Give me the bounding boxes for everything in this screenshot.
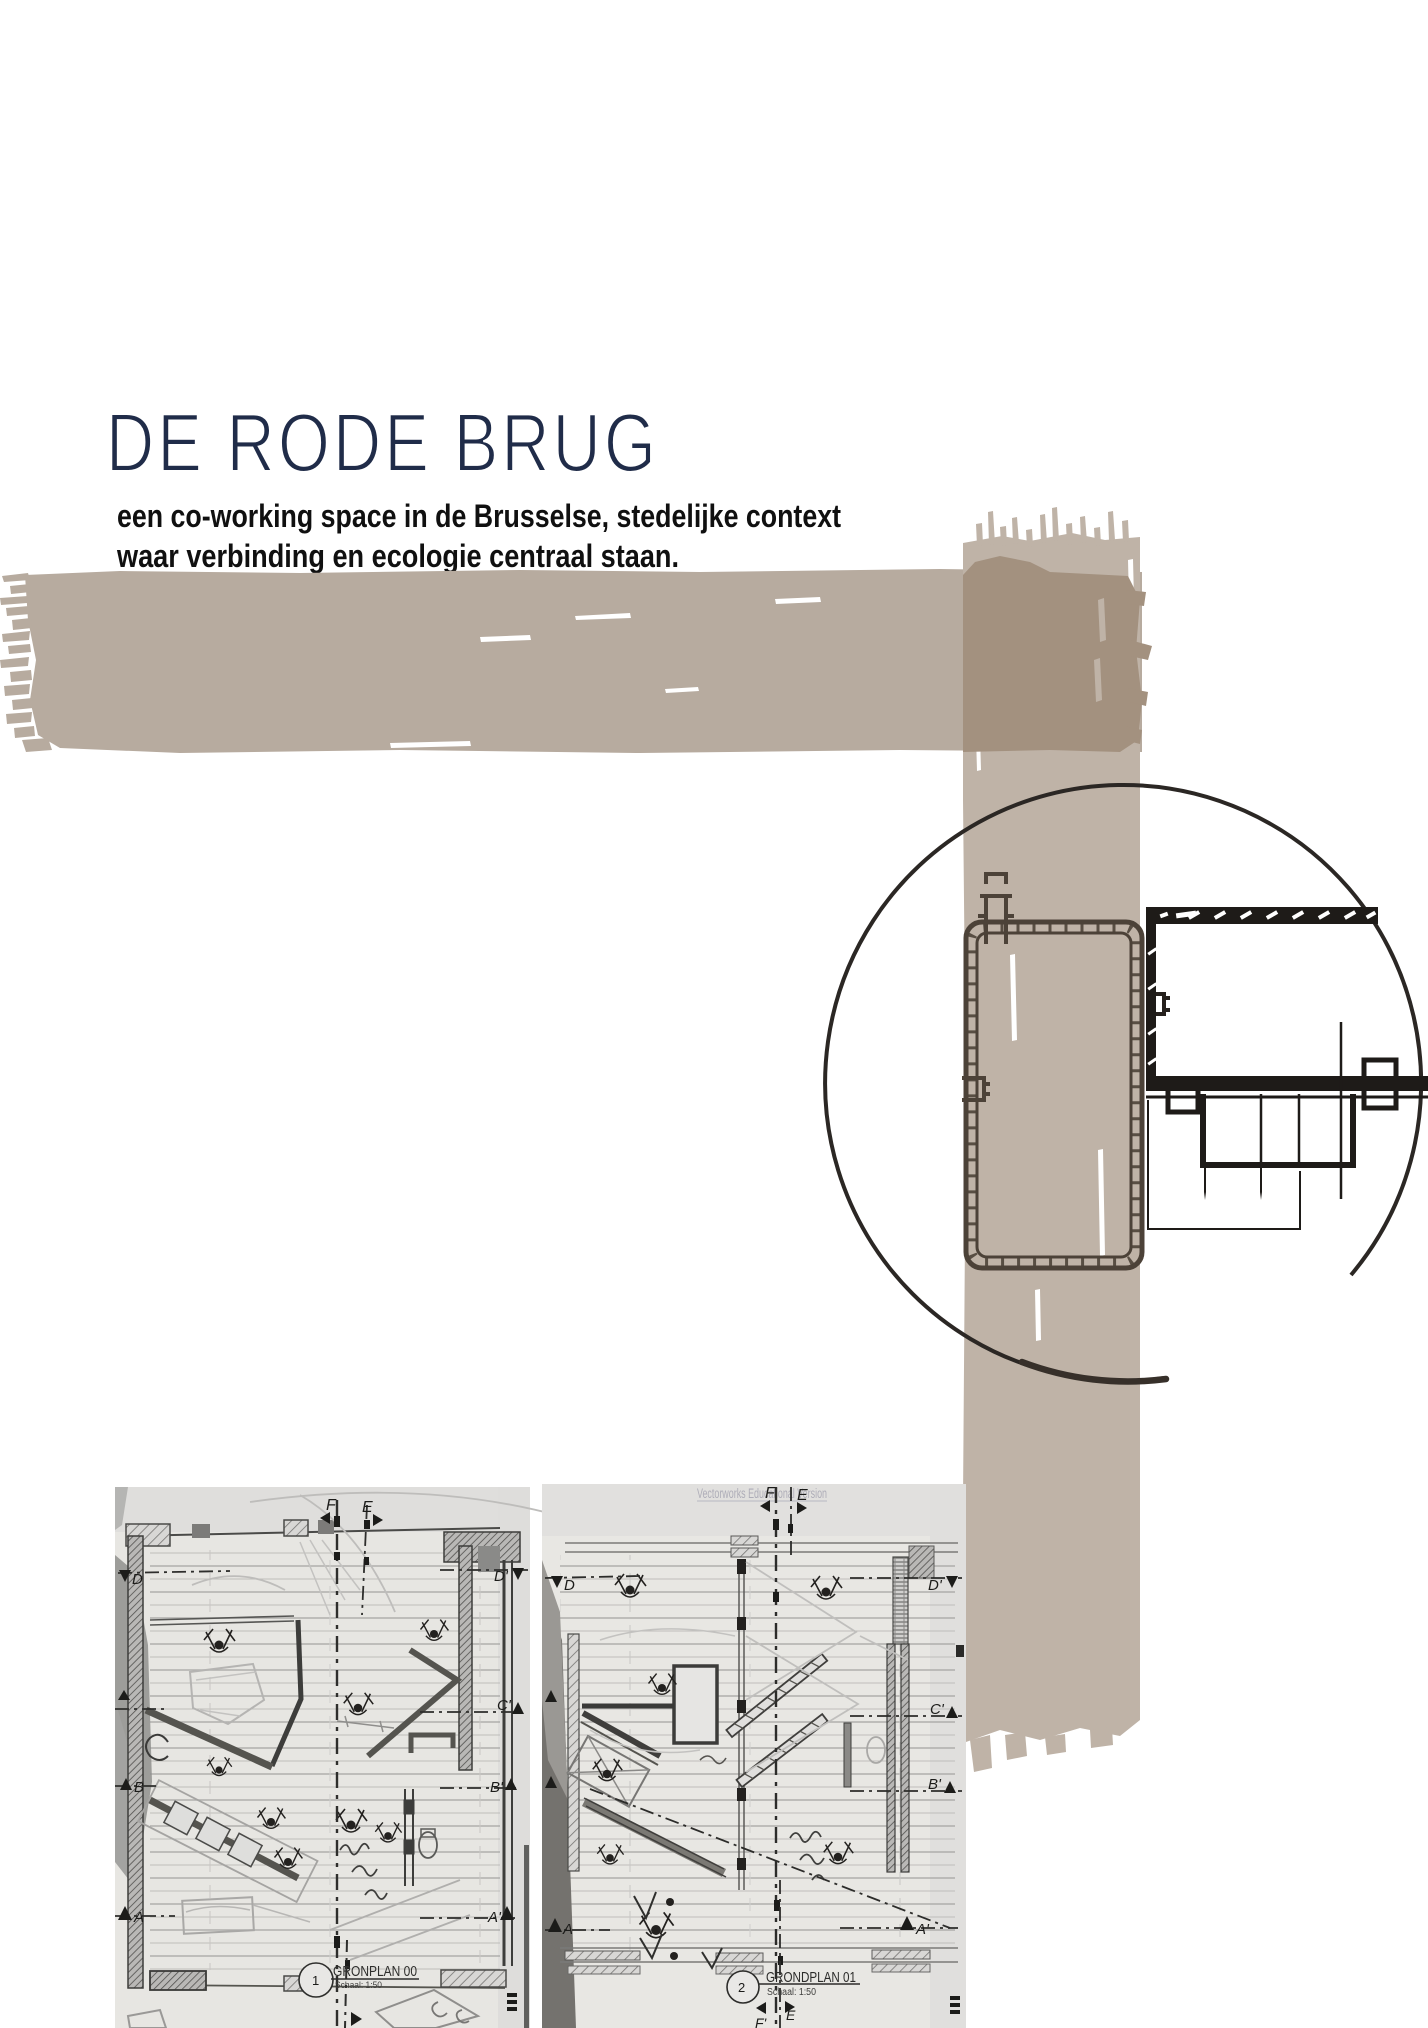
svg-text:Schaal: 1:50: Schaal: 1:50 xyxy=(335,1980,382,1991)
svg-text:A': A' xyxy=(487,1909,502,1926)
svg-text:waar verbinding en ecologie ce: waar verbinding en ecologie centraal sta… xyxy=(116,538,679,574)
svg-text:DE RODE BRUG: DE RODE BRUG xyxy=(106,396,659,489)
svg-text:F: F xyxy=(765,1485,776,1502)
svg-text:E: E xyxy=(786,2007,796,2023)
svg-text:B': B' xyxy=(928,1776,942,1793)
svg-text:D: D xyxy=(132,1571,143,1588)
svg-text:C': C' xyxy=(497,1697,512,1714)
svg-text:B': B' xyxy=(490,1779,504,1796)
svg-text:F: F xyxy=(326,1497,337,1514)
svg-text:A': A' xyxy=(915,1921,930,1938)
svg-text:E: E xyxy=(362,1499,373,1516)
svg-text:1: 1 xyxy=(312,1973,319,1988)
svg-text:F': F' xyxy=(755,2015,768,2028)
svg-text:C': C' xyxy=(930,1701,945,1718)
svg-text:A: A xyxy=(133,1909,144,1926)
svg-text:D': D' xyxy=(928,1577,943,1594)
svg-text:D: D xyxy=(564,1577,575,1594)
svg-text:Schaal: 1:50: Schaal: 1:50 xyxy=(767,1987,816,1998)
svg-text:2: 2 xyxy=(738,1980,745,1995)
svg-text:B: B xyxy=(134,1779,144,1796)
svg-text:E: E xyxy=(797,1487,808,1504)
svg-text:D': D' xyxy=(494,1568,509,1585)
svg-text:A: A xyxy=(562,1921,573,1938)
svg-text:een co-working space in de Bru: een co-working space in de Brusselse, st… xyxy=(117,498,841,534)
